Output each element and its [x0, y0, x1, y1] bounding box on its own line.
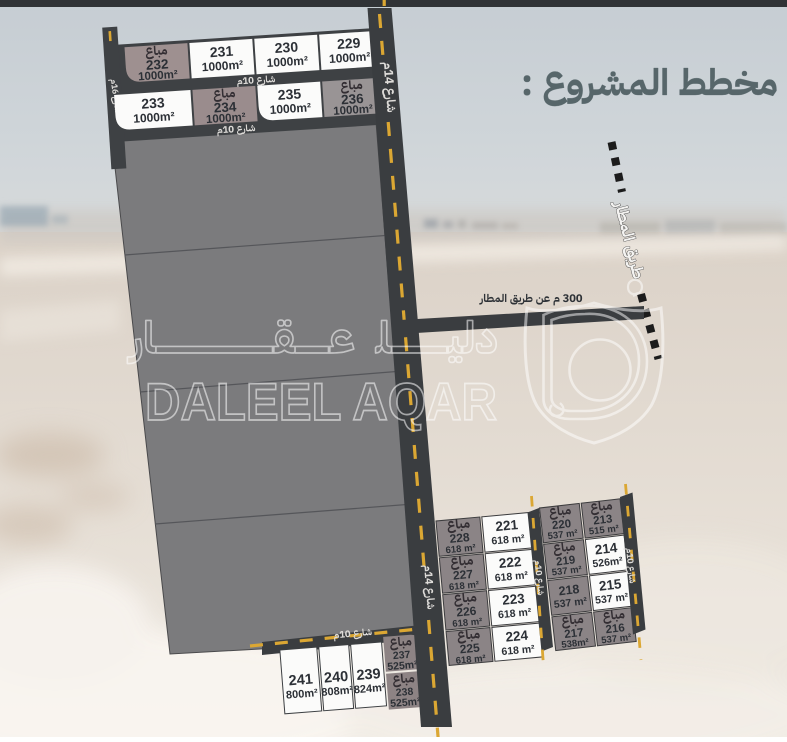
svg-text:808m²: 808m²	[321, 684, 354, 698]
svg-text:221: 221	[495, 517, 519, 534]
svg-text:800m²: 800m²	[286, 687, 319, 701]
svg-text:240: 240	[323, 669, 348, 687]
svg-text:222: 222	[498, 554, 522, 571]
svg-text:1000m²: 1000m²	[333, 103, 373, 118]
svg-text:DALEEL AQAR: DALEEL AQAR	[145, 373, 497, 432]
svg-text:1000m²: 1000m²	[138, 69, 178, 84]
svg-text:525m²: 525m²	[387, 659, 419, 673]
svg-text:1000m²: 1000m²	[266, 53, 308, 70]
svg-text:525m²: 525m²	[390, 696, 422, 710]
svg-text:1000m²: 1000m²	[133, 109, 175, 126]
svg-text:1000m²: 1000m²	[269, 100, 311, 117]
svg-text:223: 223	[502, 591, 526, 608]
svg-text:1000m²: 1000m²	[206, 112, 246, 127]
svg-text:1000m²: 1000m²	[329, 49, 371, 66]
svg-text:824m²: 824m²	[353, 682, 386, 696]
svg-text:1000m²: 1000m²	[201, 58, 243, 75]
svg-text:239: 239	[356, 666, 381, 684]
svg-text:224: 224	[505, 628, 529, 645]
svg-text:241: 241	[288, 672, 313, 690]
